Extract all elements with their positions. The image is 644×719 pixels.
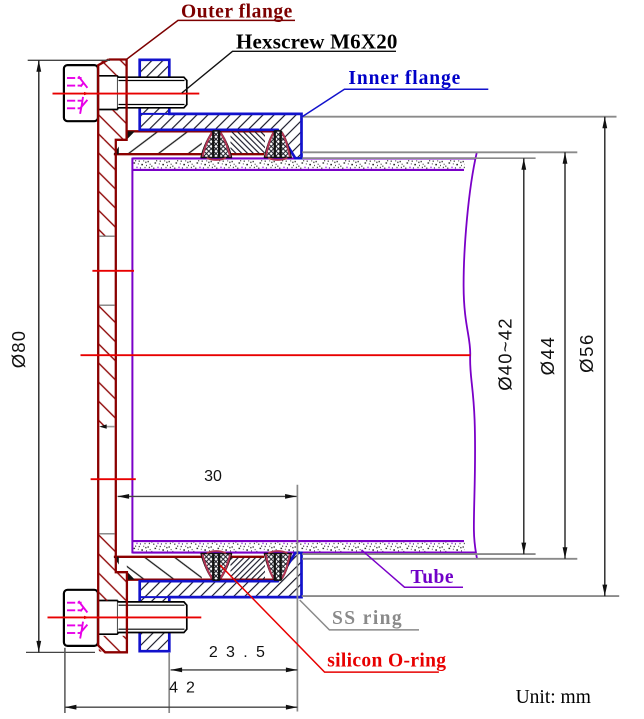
svg-text:Ø56: Ø56 <box>576 333 597 373</box>
svg-text:silicon O-ring: silicon O-ring <box>327 651 446 672</box>
svg-text:Unit: mm: Unit: mm <box>516 687 591 708</box>
svg-text:Ø80: Ø80 <box>8 330 29 369</box>
svg-text:Hexscrew M6X20: Hexscrew M6X20 <box>236 29 398 53</box>
svg-text:23.5: 23.5 <box>209 644 273 661</box>
svg-text:Ø44: Ø44 <box>537 336 558 376</box>
svg-text:30: 30 <box>204 468 222 485</box>
svg-text:Ø40~42: Ø40~42 <box>494 317 515 391</box>
svg-text:Tube: Tube <box>411 567 455 588</box>
svg-text:SS ring: SS ring <box>332 608 403 629</box>
svg-text:Outer flange: Outer flange <box>181 2 293 23</box>
svg-text:Inner flange: Inner flange <box>348 68 461 89</box>
svg-text:42: 42 <box>169 680 203 697</box>
